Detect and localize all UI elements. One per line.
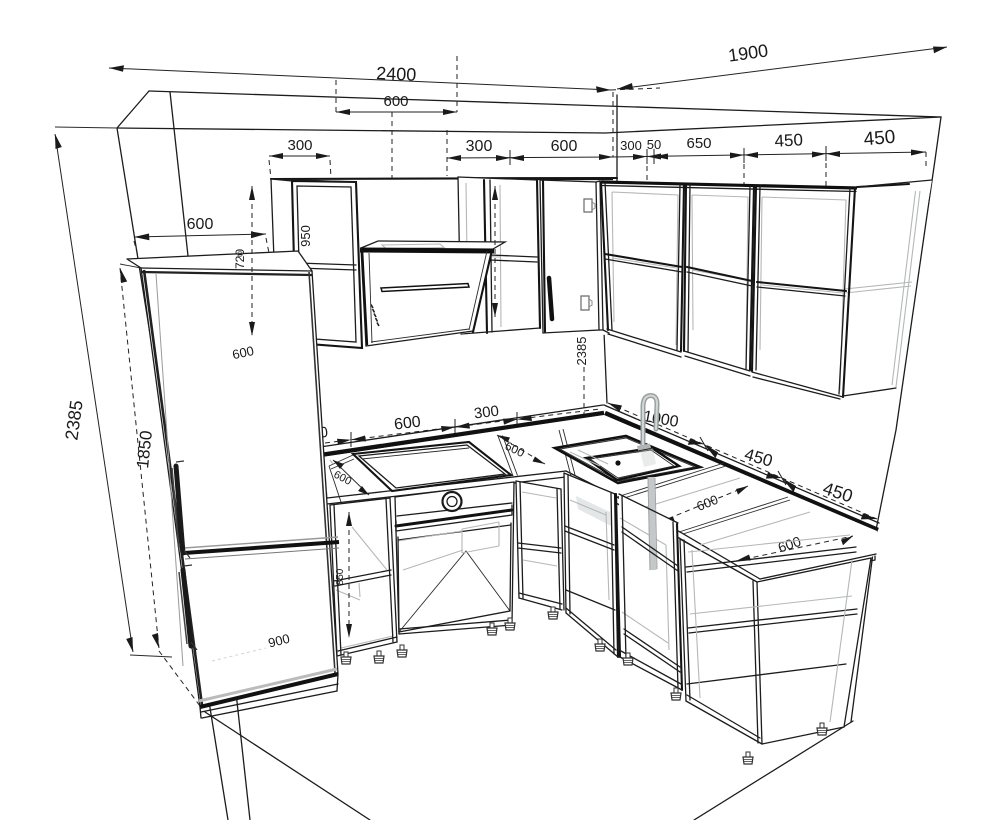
svg-text:650: 650: [686, 135, 711, 152]
svg-text:950: 950: [298, 225, 313, 247]
svg-text:600: 600: [393, 413, 422, 433]
svg-text:50: 50: [647, 137, 661, 152]
svg-text:450: 450: [774, 130, 803, 150]
svg-text:300: 300: [287, 137, 312, 154]
svg-text:1850: 1850: [133, 430, 156, 470]
svg-text:850: 850: [335, 568, 346, 585]
svg-text:600: 600: [187, 216, 214, 233]
svg-text:300: 300: [473, 403, 500, 423]
svg-text:600: 600: [383, 93, 408, 110]
svg-text:2400: 2400: [376, 63, 417, 85]
svg-text:300: 300: [620, 138, 642, 153]
svg-text:300: 300: [466, 138, 493, 155]
svg-text:600: 600: [551, 138, 578, 155]
svg-text:2385: 2385: [574, 337, 589, 366]
svg-text:450: 450: [863, 127, 896, 151]
